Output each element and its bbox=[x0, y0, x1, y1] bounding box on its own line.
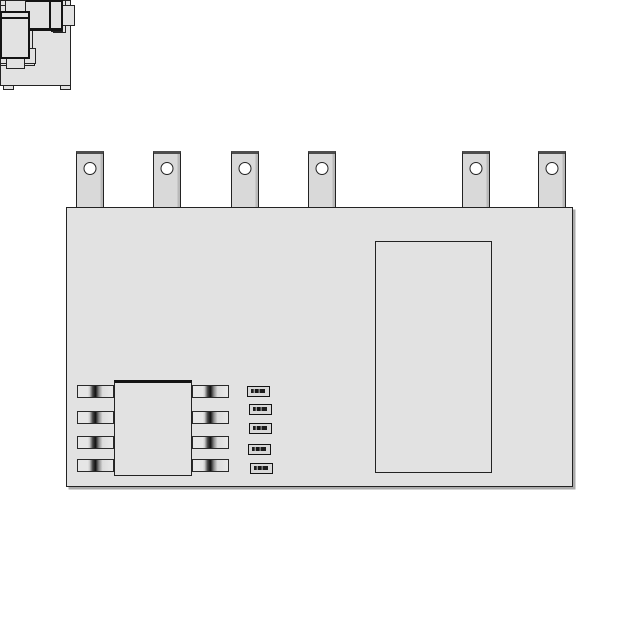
chip-resistor-r1 bbox=[247, 386, 270, 397]
diode-lead-right bbox=[61, 5, 75, 26]
pcb-components-layer bbox=[0, 0, 640, 640]
ic-lead-right-1 bbox=[192, 385, 229, 398]
chip-resistor-r5 bbox=[250, 463, 273, 474]
ic-lead-right-3 bbox=[192, 436, 229, 449]
ic-lead-right-2 bbox=[192, 411, 229, 424]
ic-lead-left-1 bbox=[77, 385, 114, 398]
chip-resistor-r4 bbox=[248, 444, 271, 455]
resistor-element bbox=[254, 466, 268, 470]
resistor-element bbox=[253, 407, 267, 411]
large-module-block bbox=[375, 241, 492, 473]
resistor-element bbox=[251, 389, 265, 393]
electrolytic-capacitor bbox=[0, 0, 30, 69]
ic-lead-left-3 bbox=[77, 436, 114, 449]
diode-cathode-band bbox=[49, 1, 52, 29]
ecap-top-seam bbox=[2, 17, 28, 19]
ic-lead-left-2 bbox=[77, 411, 114, 424]
ic-lead-left-4 bbox=[77, 459, 114, 472]
resistor-element bbox=[253, 426, 267, 430]
chip-resistor-r3 bbox=[249, 423, 272, 434]
ecap-body bbox=[0, 11, 30, 59]
chip-resistor-r2 bbox=[249, 404, 272, 415]
ic-body bbox=[114, 380, 192, 476]
pcb-module-illustration bbox=[0, 0, 640, 640]
ic-lead-right-4 bbox=[192, 459, 229, 472]
resistor-element bbox=[252, 447, 266, 451]
